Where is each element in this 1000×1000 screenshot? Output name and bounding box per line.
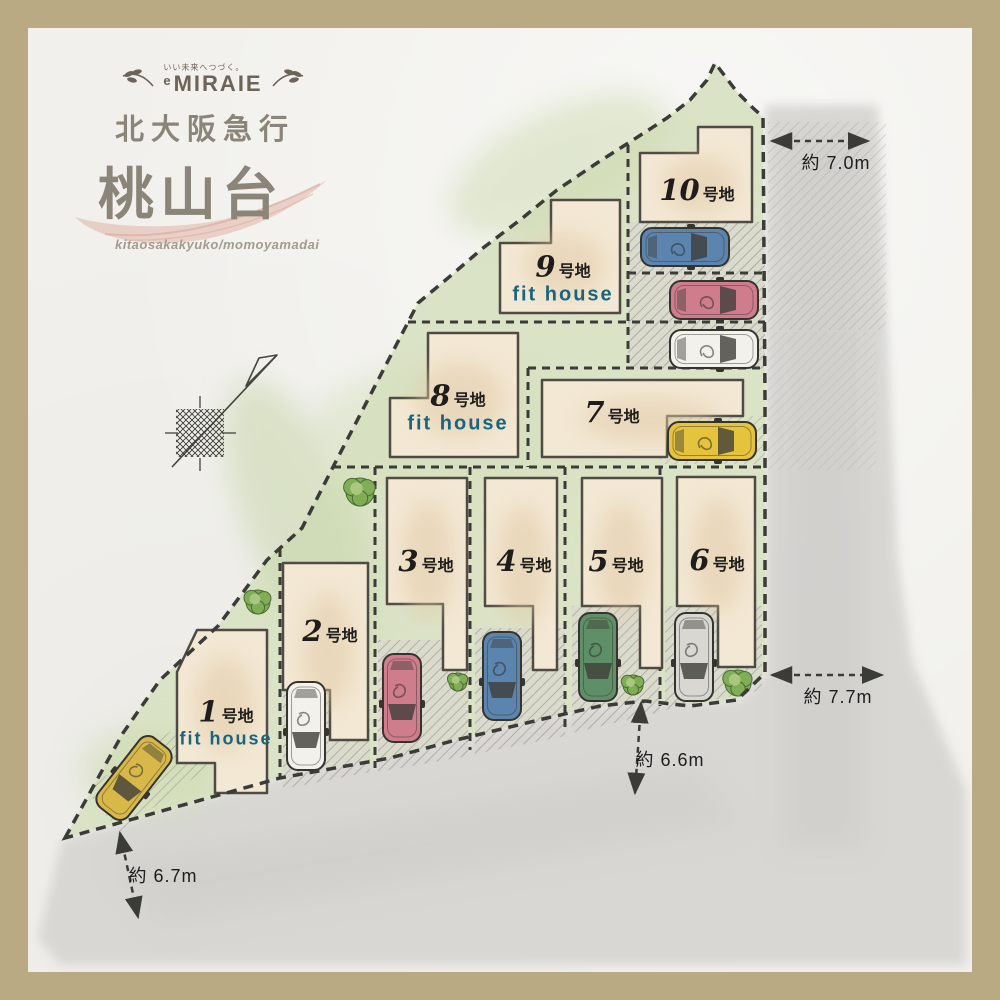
fit-house-note-1: fit house [180, 729, 273, 750]
lot-label-4: 4号地 [496, 544, 551, 578]
lot-label-5: 5号地 [588, 544, 643, 578]
car-lot-7 [668, 418, 756, 464]
lot-label-8: 8号地 fit house [407, 379, 508, 436]
railway-line-name: 北大阪急行 [115, 106, 350, 148]
dimension-middle: 約 6.6m [635, 746, 704, 772]
car-lot-10 [641, 224, 729, 270]
car-lot-3 [379, 654, 425, 742]
laurel-left-icon [121, 66, 155, 92]
dimension-bottom-left: 約 6.7m [128, 862, 197, 888]
car-lot-8-space [670, 326, 758, 372]
brand-name: eMIRAIE [163, 71, 262, 96]
fit-house-note-8: fit house [407, 413, 508, 436]
compass-hatch [176, 409, 224, 457]
area-name-romaji: kitaosakakyuko/momoyamadai [115, 237, 350, 252]
brand-logo: いい未来へつづく。 eMIRAIE [98, 62, 328, 96]
car-lot-6 [671, 613, 717, 701]
lot-label-7: 7号地 [584, 395, 639, 429]
lot-label-2: 2号地 [302, 614, 357, 648]
lot-label-9: 9号地 fit house [512, 250, 613, 307]
logo-block: いい未来へつづく。 eMIRAIE 北大阪急行 桃山台 kitaosakakyu… [70, 62, 350, 252]
lot-label-6: 6号地 [689, 543, 744, 577]
lot-label-10: 10号地 [659, 173, 734, 207]
car-lot-2 [283, 682, 329, 770]
lot-label-3: 3号地 [398, 544, 453, 578]
area-name: 桃山台 [98, 150, 350, 231]
car-lot-9-space [670, 277, 758, 323]
lot-label-1: 1号地 fit house [180, 695, 273, 750]
car-lot-5 [575, 613, 621, 701]
car-lot-4 [479, 632, 525, 720]
site-plan-page: いい未来へつづく。 eMIRAIE 北大阪急行 桃山台 kitaosakakyu… [0, 0, 1000, 1000]
dimension-top-right: 約 7.0m [801, 149, 870, 175]
laurel-right-icon [271, 66, 305, 92]
fit-house-note-9: fit house [512, 284, 613, 307]
dimension-right: 約 7.7m [803, 683, 872, 709]
